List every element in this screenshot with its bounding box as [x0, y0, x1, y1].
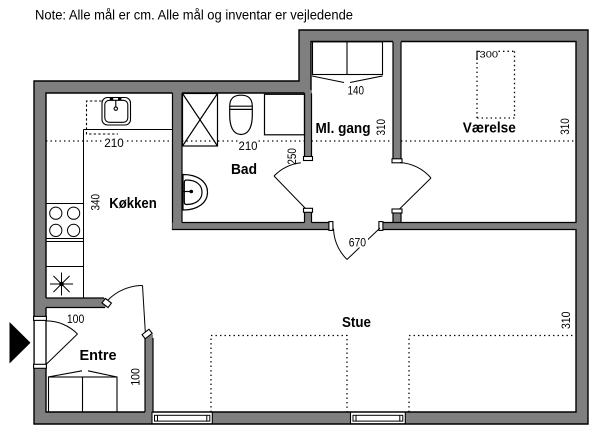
svg-text:340: 340 [91, 194, 103, 211]
svg-text:Køkken: Køkken [109, 195, 157, 212]
svg-text:310: 310 [561, 312, 573, 330]
svg-text:310: 310 [560, 118, 572, 135]
svg-text:100: 100 [67, 314, 85, 326]
svg-text:Bad: Bad [231, 161, 257, 178]
svg-text:Entre: Entre [80, 347, 117, 364]
svg-text:100: 100 [130, 368, 142, 386]
svg-text:Note: Alle mål er cm. Alle mål: Note: Alle mål er cm. Alle mål og invent… [35, 8, 353, 24]
svg-text:Værelse: Værelse [463, 119, 516, 136]
svg-text:310: 310 [376, 119, 388, 136]
svg-text:210: 210 [104, 138, 124, 150]
svg-text:Stue: Stue [342, 314, 371, 331]
svg-text:670: 670 [349, 238, 366, 250]
svg-text:140: 140 [348, 86, 365, 98]
svg-text:210: 210 [239, 141, 258, 153]
svg-text:Ml. gang: Ml. gang [316, 120, 371, 137]
svg-text:300: 300 [480, 50, 499, 61]
svg-text:250: 250 [287, 148, 299, 165]
